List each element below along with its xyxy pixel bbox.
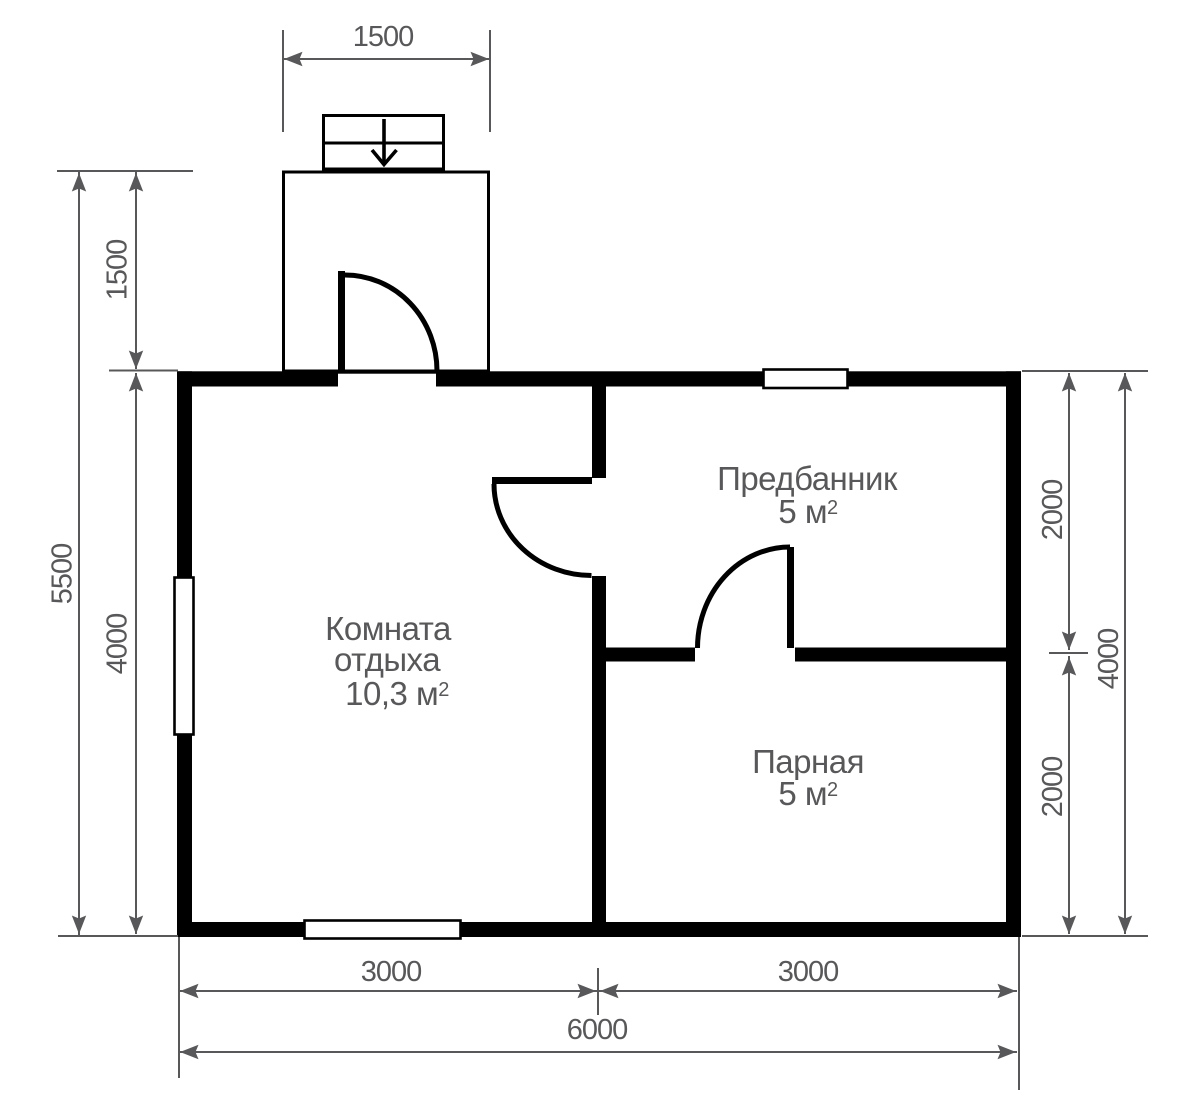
svg-text:отдыха: отдыха	[334, 641, 441, 678]
svg-text:5500: 5500	[47, 544, 79, 605]
svg-text:10,3 м2: 10,3 м2	[345, 675, 449, 712]
svg-text:2000: 2000	[1037, 757, 1069, 818]
svg-text:3000: 3000	[361, 956, 422, 988]
svg-text:1500: 1500	[102, 240, 134, 301]
svg-text:1500: 1500	[353, 21, 414, 53]
svg-text:4000: 4000	[1093, 629, 1125, 690]
svg-text:6000: 6000	[567, 1014, 628, 1046]
svg-text:2000: 2000	[1037, 480, 1069, 541]
svg-text:3000: 3000	[778, 956, 839, 988]
svg-text:4000: 4000	[102, 614, 134, 675]
svg-text:Предбанник: Предбанник	[717, 460, 898, 497]
